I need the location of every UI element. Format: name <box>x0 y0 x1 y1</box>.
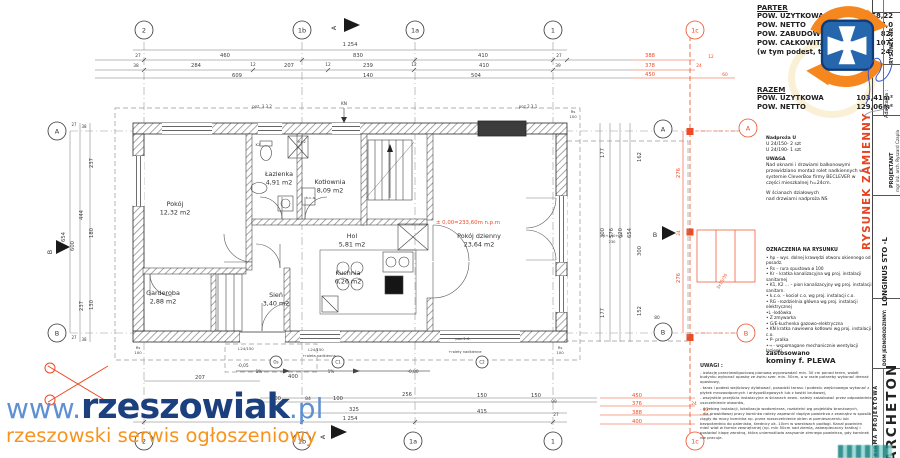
plan-label: 24 <box>696 63 702 69</box>
room-name: Sień <box>269 291 283 299</box>
plan-label: 27 <box>71 122 77 127</box>
legend: OZNACZENIA NA RYSUNKU • hp – wys. dolnej… <box>766 248 874 355</box>
plan-label: 39 <box>555 63 561 69</box>
plan-label: 130 <box>89 300 95 310</box>
watermark-url: www.rzeszowiak.pl <box>6 390 323 425</box>
plan-label: 300 <box>637 246 643 256</box>
plan-label: 609 <box>232 73 242 79</box>
plan-label: 100 <box>134 350 142 355</box>
plan-label: 410 <box>479 63 489 69</box>
chimney-note: zastosowano kominy f. PLEWA <box>766 350 836 364</box>
project-name: LONGINUS STO -L <box>881 198 889 306</box>
stat-label: POW. NETTO <box>757 103 806 112</box>
grid-bubble-label: B <box>744 329 748 337</box>
plan-label: 177 <box>600 148 606 158</box>
wall-bottom-left <box>133 331 240 342</box>
plan-label: k.c.o. <box>306 195 316 200</box>
remark-item: - izolację przeciwwilgociową pionową wyp… <box>700 371 872 385</box>
plan-label: 27 <box>135 53 141 59</box>
remark-item: - dla prawidłowej pracy kominka należy z… <box>700 412 872 440</box>
kn-vent <box>341 108 347 123</box>
room-area: 2,88 m2 <box>150 298 177 306</box>
stat-label: POW. NETTO <box>757 21 806 30</box>
plan-label: -0,05 <box>237 363 248 369</box>
plan-label: +rolety nadkienne <box>448 350 482 354</box>
replacement-drawing-label: RYSUNEK ZAMIENNY <box>861 116 873 250</box>
room-area: 12,32 m2 <box>160 209 191 217</box>
grid-bubble-label: A <box>55 127 60 135</box>
plan-label: L24/150 <box>308 347 324 352</box>
toilet <box>261 146 272 161</box>
wall-right-b <box>556 262 567 276</box>
plan-label: KZ <box>255 142 260 147</box>
nadproza-note: Nadproża U U 24/150- 2 szt U 24/190- 1 s… <box>766 136 868 203</box>
grid-bubble-label: Os <box>273 360 278 365</box>
plan-label: 12 <box>411 62 417 68</box>
plan-label: 504 <box>471 73 482 79</box>
grid-bubble-label: 1c <box>691 437 699 445</box>
remark-item: - wszystkie przejścia instalacyjne w ści… <box>700 396 872 405</box>
grid-bubble-label: 2 <box>142 26 146 34</box>
sciany-text: nad drzwiami nadproża NS <box>766 197 868 203</box>
plan-label: 24 <box>676 230 682 236</box>
washer <box>278 196 293 211</box>
plan-label: 3x15/30 <box>715 272 728 290</box>
plan-label: poz.2.6. <box>455 336 470 341</box>
room-area: 6,26 m2 <box>335 278 362 286</box>
plan-label: -0,80 <box>407 369 418 375</box>
watermark: www.rzeszowiak.pl rzeszowski serwis ogło… <box>6 390 323 446</box>
plan-label: 38 <box>81 124 87 129</box>
plan-label: 400 <box>632 419 642 425</box>
plan-label: A <box>330 25 338 30</box>
plan-label: 284 <box>191 63 202 69</box>
building-type-label: DOM JEDNORODZINNY: <box>883 306 888 366</box>
plan-label: 400 <box>288 374 298 380</box>
grid-lines <box>70 42 742 430</box>
plan-label: 12 <box>250 62 256 68</box>
room-name: Łazienka <box>264 170 293 178</box>
grid-bubble-label: 1a <box>409 437 417 445</box>
watermark-www: www. <box>6 392 81 425</box>
design-firm-label: FIRMA PROJEKTOWA <box>874 372 879 456</box>
grid-bubble-label: B <box>55 329 59 337</box>
plan-label: 444 <box>79 209 85 220</box>
plan-label: 654 <box>627 227 633 238</box>
plan-label: 410 <box>478 53 488 59</box>
wall-right-a <box>556 134 567 196</box>
plan-label: 1% <box>256 369 263 375</box>
chimney-block <box>478 121 526 136</box>
grid-bubble-label: 1 <box>551 26 555 34</box>
grid-bubble-label: 1a <box>411 26 419 34</box>
uwaga-text: Nad oknami i drzwiami balkonowymi przewi… <box>766 163 868 186</box>
grid-bubble-label: A <box>661 125 666 133</box>
plan-label: 207 <box>284 63 294 69</box>
sink <box>251 183 267 194</box>
plan-label: 378 <box>645 63 655 69</box>
watermark-tagline: rzeszowski serwis ogłoszeniowy <box>6 426 323 446</box>
plan-labels-layer: 1 25427460830410273828412207122391241039… <box>46 25 728 439</box>
plan-label: 600 <box>70 241 76 251</box>
grid-bubble-label: C1 <box>335 360 341 365</box>
plan-label: 415 <box>477 409 487 415</box>
room-area: 3,40 m2 <box>263 300 290 308</box>
plan-label: 325 <box>349 407 359 413</box>
plan-label: 12 <box>325 62 331 68</box>
room-area: 4,91 m2 <box>266 179 293 187</box>
plan-label: 180 <box>89 228 95 238</box>
plan-label: 150 <box>531 393 541 399</box>
plan-label: 60 <box>722 72 728 78</box>
plan-label: 450 <box>632 393 642 399</box>
grid-bubble-label: 1b <box>298 26 306 34</box>
room-name: Kotłownia <box>315 178 346 186</box>
plan-label: 1 254 <box>343 42 359 48</box>
remarks: UWAGI : - izolację przeciwwilgociową pio… <box>700 364 872 442</box>
grid-bubble-label: A <box>746 124 751 132</box>
grid-bubble-label: C2 <box>479 360 485 365</box>
plan-label: 460 <box>220 53 230 59</box>
room-name: Pokój <box>167 200 184 208</box>
plan-label: 80 <box>654 315 660 321</box>
plan-label: 27 <box>71 335 77 340</box>
wall-left-b <box>133 206 144 331</box>
plan-label: Kr-2 <box>298 139 306 144</box>
plan-label: ± 0,00=233,60m n.p.m <box>436 220 500 226</box>
plan-label: 230 <box>609 240 617 244</box>
plan-label: 1% <box>328 369 335 375</box>
plan-label: 75+150+75 <box>601 234 623 238</box>
room-area: 8,09 m2 <box>317 187 344 195</box>
wall-left-a <box>133 134 144 156</box>
plan-label: 38 <box>81 337 87 342</box>
legend-item: • hp – wys. dolnej krawędzi otworu okien… <box>766 256 874 267</box>
plan-label: 140 <box>363 73 373 79</box>
plan-label: 388 <box>645 53 655 59</box>
cooker <box>385 276 403 294</box>
plan-label: 27 <box>553 412 559 418</box>
plan-label: 388 <box>632 410 642 416</box>
section-markers <box>56 18 676 439</box>
titleblock-rule <box>872 195 900 196</box>
watermark-tld: .pl <box>289 392 323 425</box>
plan-label: +roleta nadkienna <box>302 354 335 358</box>
plan-label: 276 <box>676 273 682 283</box>
designer-name: mgr inż. arch. Ryszard Czapla <box>895 122 900 192</box>
plan-label: KN <box>341 101 347 107</box>
room-name: Hol <box>347 232 358 240</box>
plan-label: 24 <box>691 401 697 407</box>
plan-label: B <box>46 250 54 254</box>
legend-item: • KN kratka nawiewna kotłowni wg proj. i… <box>766 327 874 338</box>
chimney-note-line2: kominy f. PLEWA <box>766 357 836 364</box>
plan-label: 450 <box>645 72 655 78</box>
teal-stamp <box>838 445 892 458</box>
plan-label: L24/150 <box>238 346 254 351</box>
plan-label: 27 <box>556 53 562 59</box>
room-name: Pokój dzienny <box>457 232 501 240</box>
plan-label: poz. 3.3.2 <box>252 104 272 109</box>
watermark-name: rzeszowiak <box>81 387 289 427</box>
plan-label: 150 <box>477 393 487 399</box>
legend-item: • K1, K2 ... – pion kanalizacyjny wg pro… <box>766 283 874 294</box>
red-overlay <box>45 36 755 438</box>
plan-label: B <box>653 231 657 239</box>
plan-label: 177 <box>600 308 606 318</box>
kitchen-sink <box>383 252 413 272</box>
grid-bubble-label: 1c <box>691 26 699 34</box>
legend-item: • RG –rozdzielnia główna wg proj. instal… <box>766 300 874 311</box>
room-area: 23,64 m2 <box>464 241 495 249</box>
signature-scribble <box>858 34 898 120</box>
legend-title: OZNACZENIA NA RYSUNKU <box>766 248 874 254</box>
wall-right-c <box>556 312 567 331</box>
plan-label: 162 <box>637 152 643 162</box>
remark-item: - taras i podest wejściowy dylatować, po… <box>700 386 872 395</box>
plan-label: 830 <box>353 53 363 59</box>
floor-plan-sheet: 1 25427460830410273828412207122391241039… <box>0 0 900 458</box>
plan-label: 654 <box>61 231 67 242</box>
plan-label: poz 2.3.1 <box>519 104 538 109</box>
room-area: 5,81 m2 <box>339 241 366 249</box>
room-name: Kuchnia <box>335 269 360 277</box>
stairs <box>366 140 414 200</box>
grid-bubble-label: B <box>661 328 665 336</box>
plan-label: 237 <box>79 301 85 311</box>
plan-label: 100 <box>556 350 564 355</box>
remarks-title: UWAGI : <box>700 364 872 369</box>
plan-label: 376 <box>632 401 642 407</box>
plan-label: 38 <box>133 63 139 69</box>
room-name: Garderoba <box>146 289 180 297</box>
grid-bubbles-layer: 21b1a11c21b1a11cABABABOsC1C2 <box>48 21 757 450</box>
legend-item: • Kr – kratka kanalizacyjna wg proj. ins… <box>766 272 874 283</box>
plan-label: 256 <box>402 392 412 398</box>
plan-label: 239 <box>363 63 373 69</box>
plan-label: 152 <box>637 306 643 316</box>
plan-label: 237 <box>89 158 95 168</box>
grid-bubble-label: 1 <box>551 437 555 445</box>
plan-label: 100 <box>569 114 577 119</box>
plan-label: 276 <box>676 168 682 178</box>
plan-label: 1 254 <box>343 416 359 422</box>
stat-label: POW. UZYTKOWA <box>757 94 824 103</box>
plan-label: 207 <box>195 375 205 381</box>
plan-label: 100 <box>333 396 343 402</box>
wardrobe <box>218 274 242 331</box>
plan-label: 12 <box>708 54 714 60</box>
plan-label: 99 <box>551 399 557 405</box>
